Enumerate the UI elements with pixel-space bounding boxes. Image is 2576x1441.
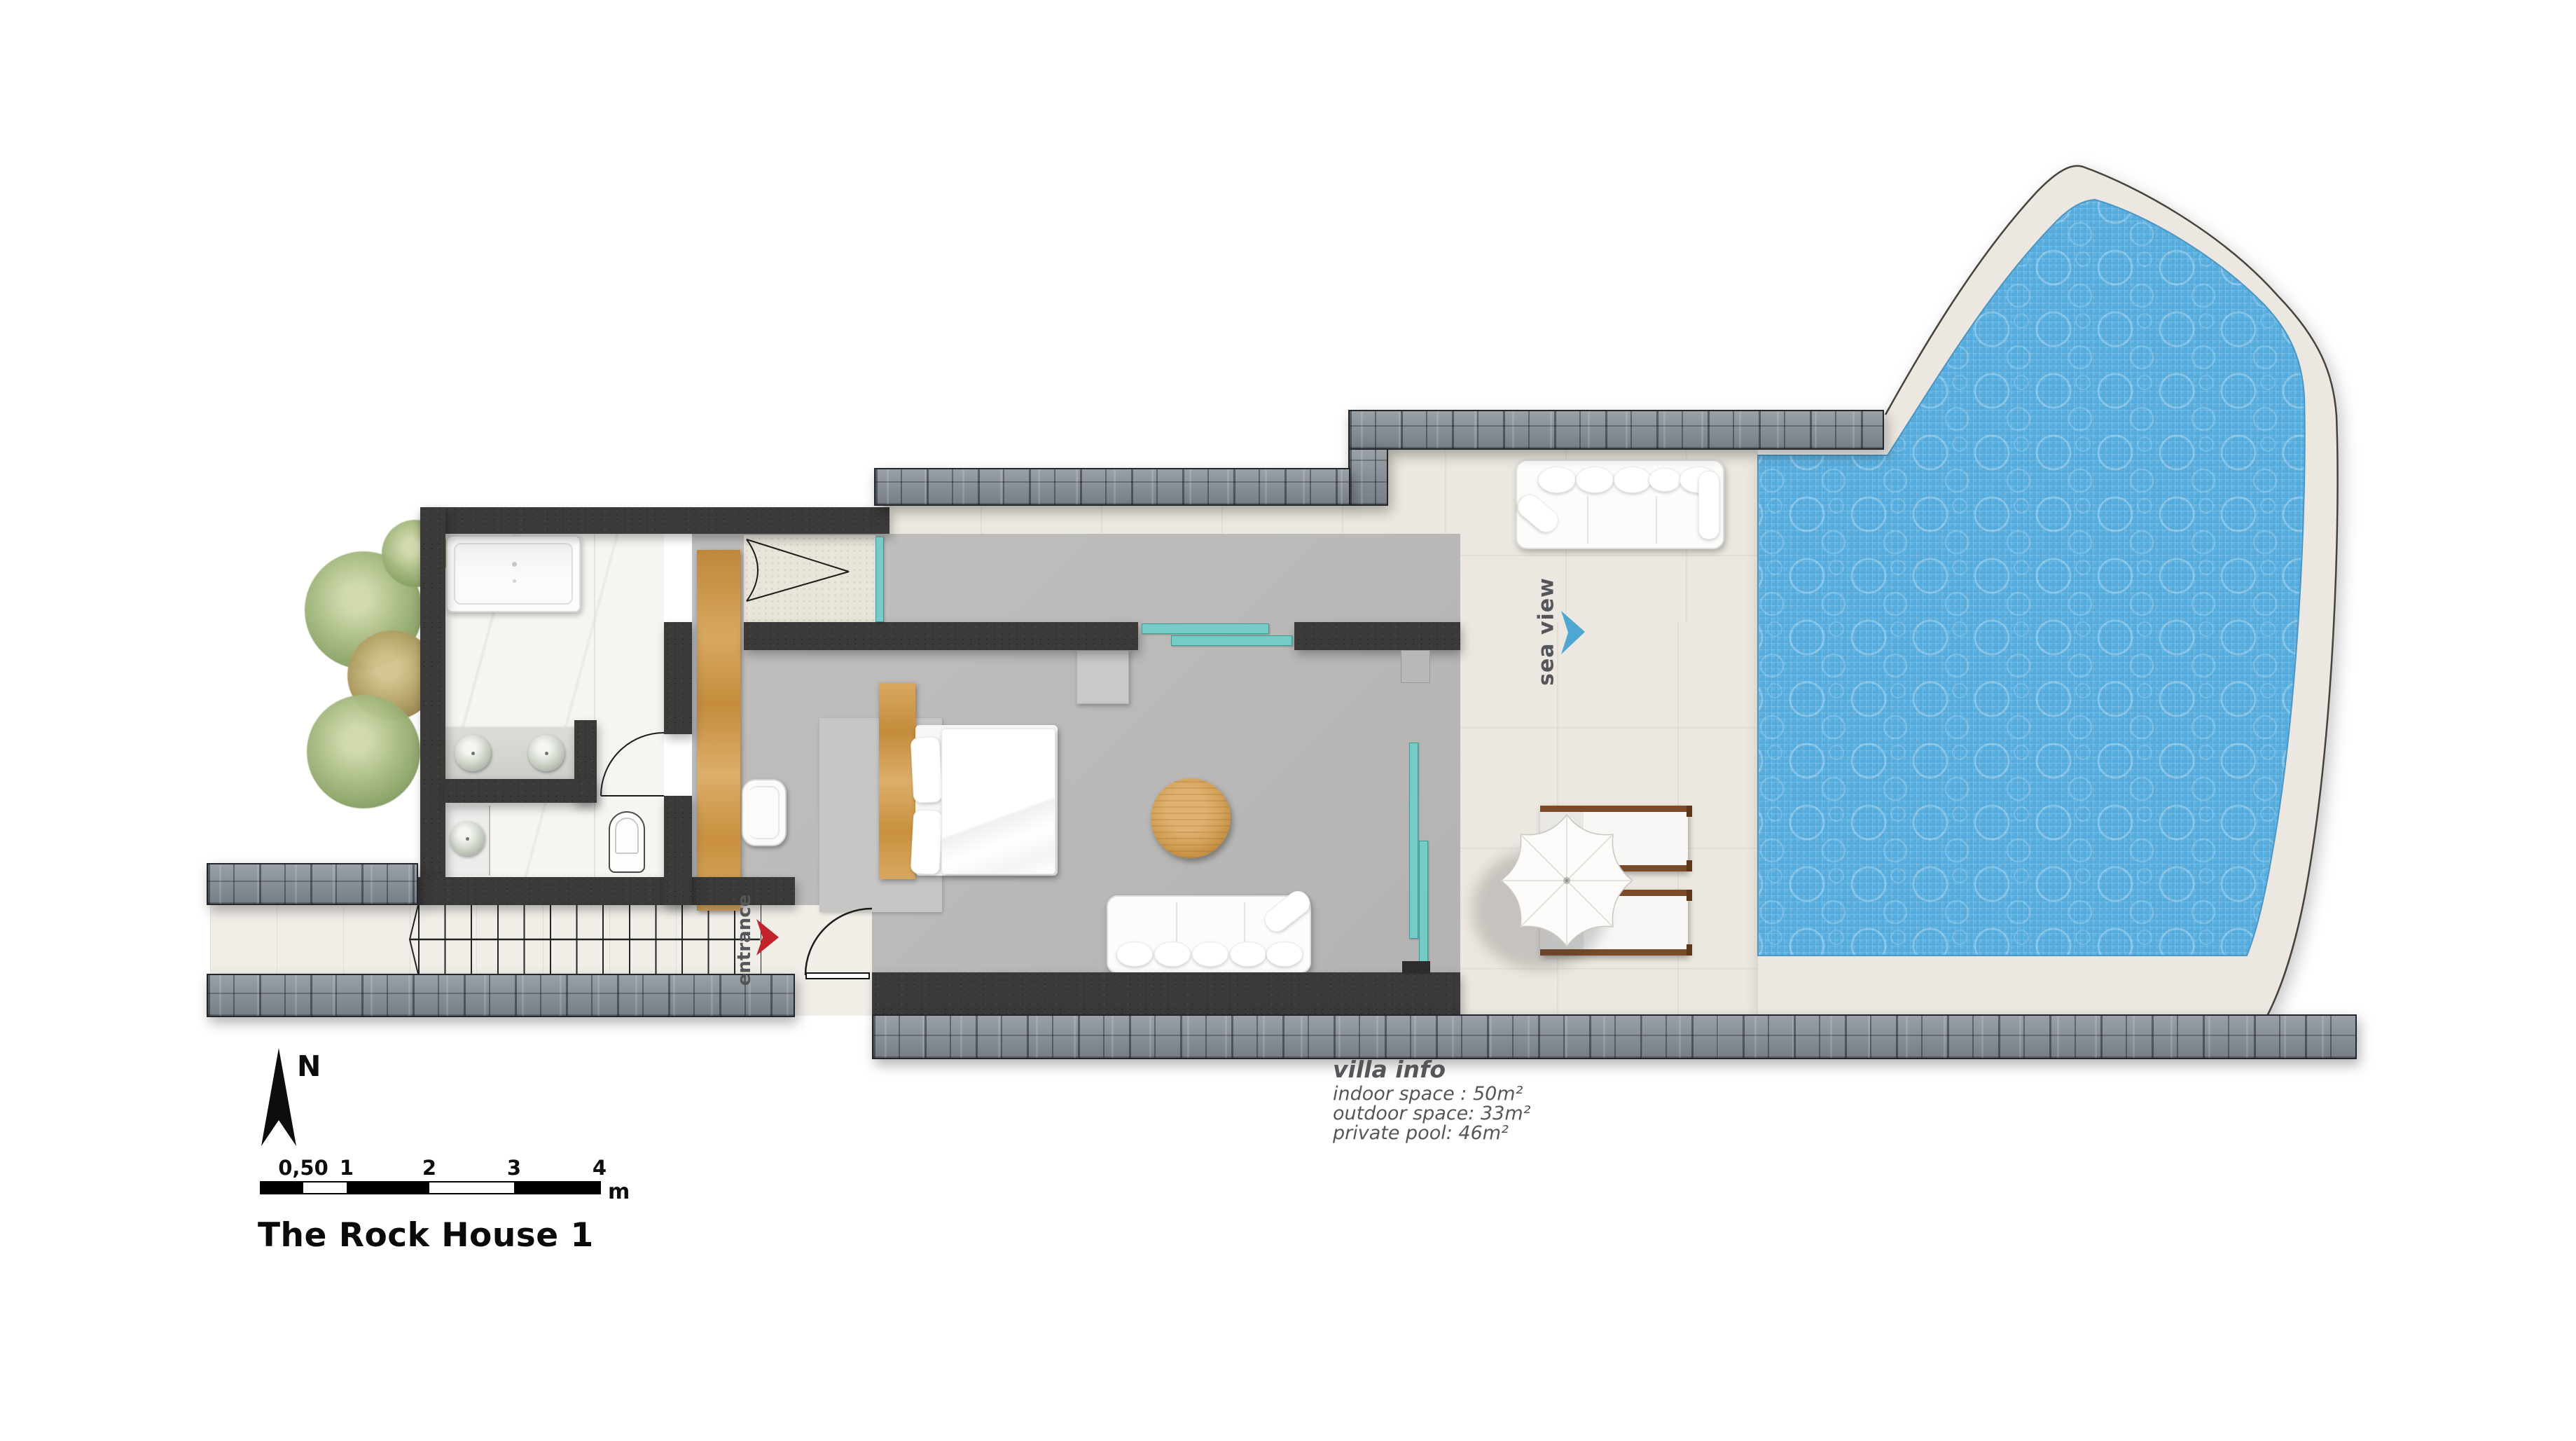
north-arrow-icon <box>261 1048 296 1146</box>
scale-tick-label: 0,50 <box>278 1156 328 1180</box>
villa-info-block: villa info indoor space : 50m² outdoor s… <box>1333 1058 1697 1144</box>
villa-info-line: private pool: 46m² <box>1333 1124 1697 1143</box>
scale-bar: 0,50 1 2 3 4 <box>260 1156 624 1198</box>
entrance-label: entrance <box>734 888 755 993</box>
entrance-arrow-icon <box>756 919 779 956</box>
compass-north-label: N <box>297 1049 321 1083</box>
scale-unit-label: m <box>608 1180 630 1204</box>
entrance-door-arc <box>805 909 872 975</box>
stairs-direction-line <box>410 905 760 974</box>
scale-tick-label: 2 <box>422 1156 436 1180</box>
scale-tick-label: 3 <box>507 1156 521 1180</box>
floor-plan: sea view entrance N 0,50 1 2 3 4 m The R… <box>0 0 2576 1441</box>
closet-doors <box>747 539 849 601</box>
umbrella-icon <box>1472 815 1633 970</box>
sea-view-arrow-icon <box>1561 611 1585 654</box>
bathroom-door <box>601 733 664 796</box>
villa-info-line: outdoor space: 33m² <box>1333 1104 1697 1124</box>
plan-title: The Rock House 1 <box>258 1216 888 1255</box>
scale-tick-label: 1 <box>340 1156 354 1180</box>
villa-info-line: indoor space : 50m² <box>1333 1084 1697 1104</box>
villa-info-heading: villa info <box>1333 1058 1697 1082</box>
sea-view-label: sea view <box>1535 576 1559 688</box>
scale-bar-rule <box>260 1181 601 1194</box>
scale-tick-label: 4 <box>593 1156 607 1180</box>
